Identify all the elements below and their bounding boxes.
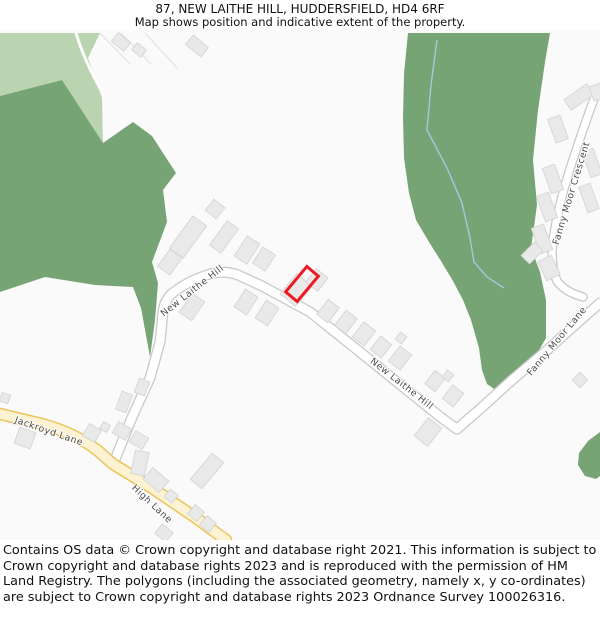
property-map-page: 87, NEW LAITHE HILL, HUDDERSFIELD, HD4 6… [0, 0, 600, 625]
building [542, 164, 563, 194]
road-new-laithe-hill [114, 272, 457, 462]
building [131, 450, 150, 476]
woodland-right-edge [578, 432, 600, 479]
building [425, 370, 446, 391]
building [442, 385, 463, 407]
woodland-right [403, 33, 550, 391]
building [548, 115, 569, 143]
building [395, 332, 407, 344]
building [414, 418, 442, 447]
building [155, 524, 173, 540]
map-canvas: New Laithe HillNew Laithe HillFanny Moor… [0, 30, 600, 540]
building [572, 372, 588, 388]
woodland-left [0, 80, 176, 357]
building [169, 216, 206, 258]
copyright-attribution: Contains OS data © Crown copyright and d… [0, 540, 600, 605]
building [210, 221, 239, 253]
building [132, 43, 147, 58]
building [234, 289, 258, 315]
building [190, 453, 223, 489]
page-subtitle: Map shows position and indicative extent… [0, 16, 600, 29]
building [129, 431, 148, 450]
map-header: 87, NEW LAITHE HILL, HUDDERSFIELD, HD4 6… [0, 0, 600, 30]
building [205, 199, 225, 219]
building [185, 35, 208, 57]
building [370, 336, 391, 358]
building [579, 183, 600, 212]
building [0, 392, 11, 404]
page-title: 87, NEW LAITHE HILL, HUDDERSFIELD, HD4 6… [0, 2, 600, 16]
building [388, 346, 412, 370]
building [255, 300, 279, 326]
